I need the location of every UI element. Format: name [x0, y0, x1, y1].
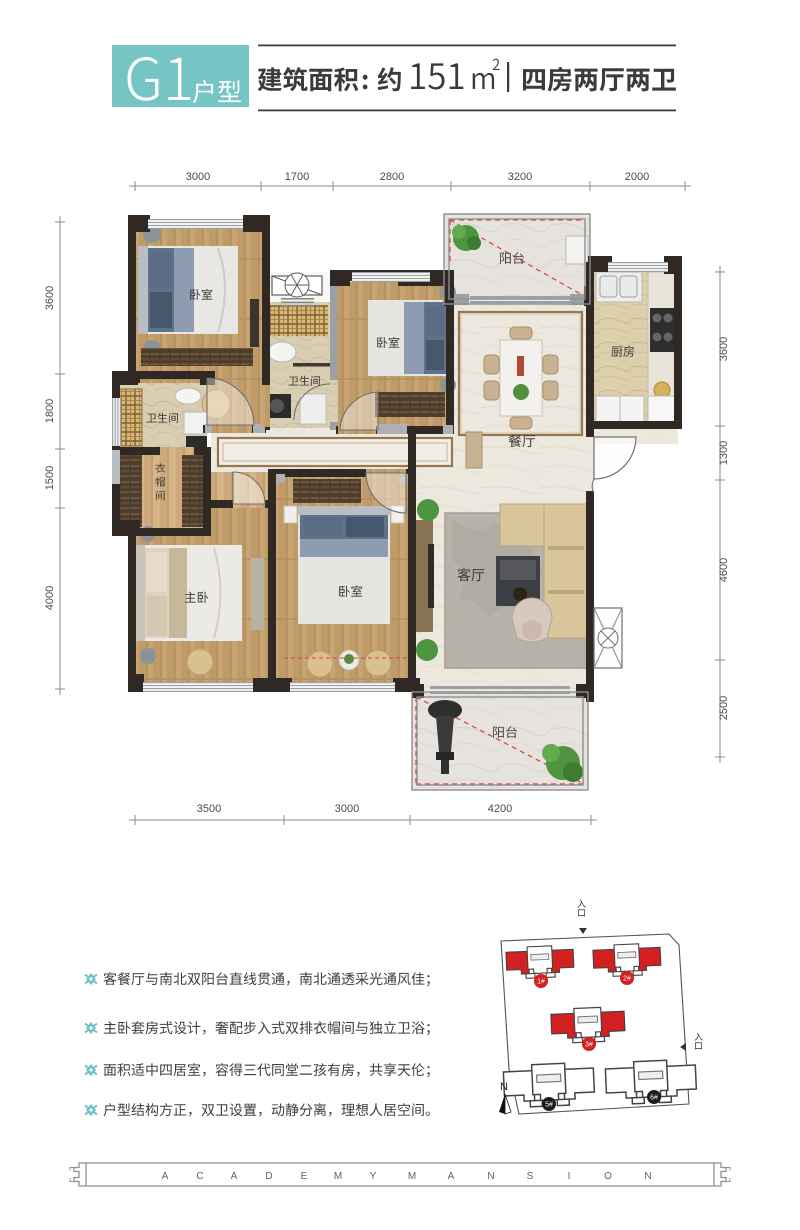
svg-text:2000: 2000: [625, 171, 649, 183]
svg-text:1800: 1800: [44, 399, 56, 423]
svg-text:3600: 3600: [718, 337, 730, 361]
svg-text:3600: 3600: [44, 286, 56, 310]
svg-text:4000: 4000: [44, 586, 56, 610]
svg-text:2#: 2#: [623, 976, 631, 983]
svg-text:M: M: [408, 1171, 416, 1182]
svg-text:3000: 3000: [335, 803, 359, 815]
svg-text:D: D: [265, 1171, 272, 1182]
svg-text:N: N: [644, 1171, 651, 1182]
svg-text:N: N: [500, 1081, 508, 1093]
svg-text:4200: 4200: [488, 803, 512, 815]
svg-text:I: I: [568, 1171, 571, 1182]
svg-text:C: C: [196, 1171, 203, 1182]
svg-text:5#: 5#: [545, 1102, 553, 1109]
svg-text:N: N: [487, 1171, 494, 1182]
svg-text:2500: 2500: [718, 696, 730, 720]
svg-text:3#: 3#: [585, 1042, 593, 1049]
svg-text:3000: 3000: [186, 171, 210, 183]
svg-text:1300: 1300: [718, 441, 730, 465]
svg-text:1700: 1700: [285, 171, 309, 183]
svg-text:6#: 6#: [650, 1095, 658, 1102]
svg-text:3500: 3500: [197, 803, 221, 815]
svg-text:A: A: [231, 1171, 238, 1182]
svg-text:2800: 2800: [380, 171, 404, 183]
svg-text:4600: 4600: [718, 558, 730, 582]
svg-text:A: A: [162, 1171, 169, 1182]
svg-text:1#: 1#: [537, 979, 545, 986]
svg-text:3200: 3200: [508, 171, 532, 183]
svg-text:A: A: [448, 1171, 455, 1182]
svg-text:E: E: [301, 1171, 308, 1182]
svg-text:1500: 1500: [44, 466, 56, 490]
svg-text:Y: Y: [370, 1171, 377, 1182]
svg-text:O: O: [604, 1171, 612, 1182]
svg-text:S: S: [527, 1171, 534, 1182]
svg-text:M: M: [334, 1171, 342, 1182]
